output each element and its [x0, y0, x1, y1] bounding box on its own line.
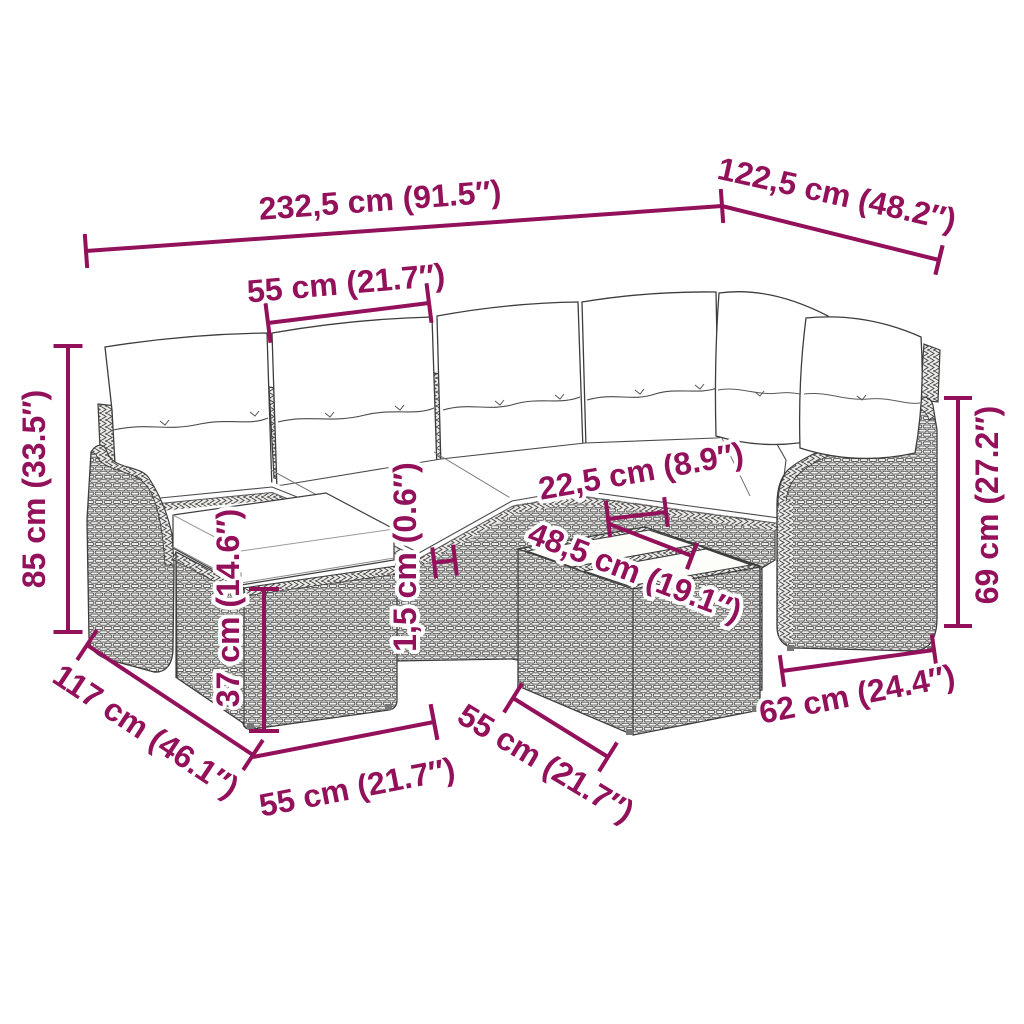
- svg-text:37 cm (14.6″): 37 cm (14.6″): [210, 509, 246, 708]
- svg-text:69 cm (27.2″): 69 cm (27.2″): [969, 406, 1005, 605]
- svg-text:85 cm (33.5″): 85 cm (33.5″): [16, 390, 52, 589]
- svg-text:1,5 cm (0.6″): 1,5 cm (0.6″): [387, 462, 423, 652]
